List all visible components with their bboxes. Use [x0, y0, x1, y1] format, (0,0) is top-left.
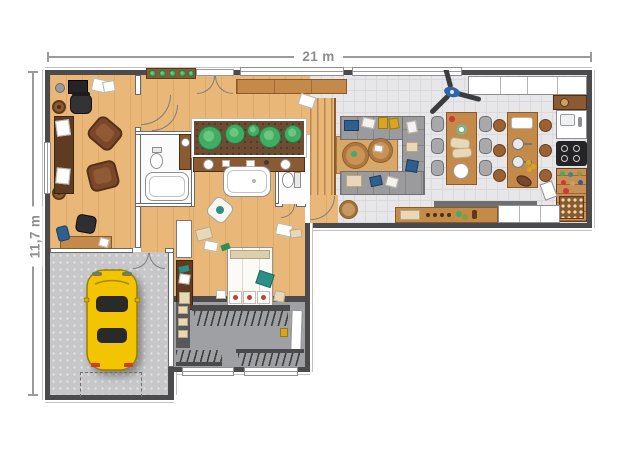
dining-chair [431, 116, 444, 132]
bath-toilet-icon [150, 153, 163, 169]
bath-sink-icon [181, 138, 190, 147]
garden-plant-icon [259, 126, 281, 148]
dining-chair [479, 116, 492, 132]
dim-left-tick-top [28, 71, 38, 73]
garden-plant-icon [225, 124, 245, 144]
stool-icon [493, 119, 506, 132]
bedroom-paper [289, 228, 302, 239]
planter-plant-icon [149, 70, 156, 77]
floor-plan: 21 m 11,7 m [0, 0, 620, 465]
cooktop-burner [573, 155, 580, 162]
vanity-sink-left [203, 159, 214, 170]
dim-top-line-left [48, 56, 296, 58]
yellow-car-icon [84, 268, 140, 372]
garage-door-dashed [80, 372, 142, 397]
cooktop-burner [573, 145, 580, 152]
entry-door-gap [196, 69, 234, 76]
window-closet-b [244, 367, 298, 376]
kitchen-shelf [553, 95, 587, 110]
wall-bath-bottom [135, 203, 195, 207]
stool-icon [539, 144, 552, 157]
cooktop [556, 141, 587, 166]
pantry-jar [568, 172, 573, 177]
dining-chair [431, 160, 444, 176]
vanity-towel [246, 160, 255, 167]
closet-item-yellow [280, 328, 288, 337]
wall-right [587, 70, 592, 228]
bed-basket [273, 290, 286, 303]
sofa-cushion [344, 120, 359, 131]
island-flowers-yellow [526, 160, 531, 165]
wall-office-a [135, 75, 141, 95]
sofa-cushion [406, 142, 418, 152]
stool-icon [493, 144, 506, 157]
dim-left-line-top [32, 72, 34, 210]
closet-hangers-br [238, 353, 302, 366]
sideboard-knobs [426, 213, 430, 217]
sink-bowl [560, 114, 575, 126]
cooktop-burner [561, 155, 568, 162]
closet-hangers [194, 311, 288, 326]
sink-faucet-icon [578, 117, 582, 127]
steps-floor [310, 98, 336, 195]
wardrobe-cabinet [176, 220, 192, 258]
vanity-sink-right [280, 159, 291, 170]
dresser-box [179, 292, 190, 304]
dim-left-line-bottom [32, 266, 34, 396]
closet-rack-bar-bl [176, 362, 222, 366]
ceiling-fan [420, 70, 484, 116]
wc-toilet-tank [294, 172, 301, 188]
cabinet-divider [540, 206, 541, 222]
plant-pot-icon [52, 100, 66, 114]
dim-top-label: 21 m [294, 49, 343, 64]
long-table-papers [55, 167, 71, 184]
bed-cushion-red [257, 291, 270, 304]
pantry-jar [561, 180, 566, 185]
vanity-accessory [264, 160, 269, 165]
cooktop-burner [561, 145, 568, 152]
bathtub-drain [252, 179, 256, 183]
office-chair-back [72, 92, 90, 96]
dim-left-tick-bottom [28, 394, 38, 396]
sofa-cushion [378, 117, 388, 129]
sofa-cushion [388, 117, 399, 129]
dining-chair [479, 160, 492, 176]
dresser-paper [178, 273, 190, 284]
closet-mirror [289, 309, 303, 351]
bed-cushion-red [243, 291, 256, 304]
planter-plant-icon [188, 70, 194, 77]
window-living-top-a [240, 67, 344, 76]
dining-chair [431, 138, 444, 154]
kitchen-cabinets-bottom [498, 205, 560, 223]
coffee-table-tray [373, 144, 383, 152]
stool-icon [493, 169, 506, 182]
wall-left [45, 70, 50, 400]
sofa-cushion [346, 175, 362, 187]
planter-plant-icon [159, 70, 166, 77]
sideboard-bottle [472, 210, 477, 219]
basket-icon [339, 200, 358, 219]
cabinet-divider [500, 77, 501, 94]
dim-top-tick-right [590, 52, 592, 62]
office-papers [102, 80, 116, 93]
garage-car [84, 268, 140, 372]
shelf-jar [560, 98, 569, 107]
vanity-towel [222, 160, 230, 167]
stool-icon [539, 119, 552, 132]
table-vase-red [449, 116, 455, 122]
window-closet-a [182, 367, 234, 376]
sofa-cushion [406, 120, 418, 134]
bath-tub-inner [149, 176, 185, 197]
pantry-jar [570, 181, 575, 186]
island-tray [511, 117, 533, 129]
master-bathtub-inner [227, 170, 267, 193]
window-office-left [44, 142, 51, 194]
garden-plant-icon [198, 126, 222, 150]
pantry-jar [563, 188, 569, 194]
closet-box [178, 318, 188, 326]
dim-left-label: 11,7 m [28, 207, 43, 267]
closet-box [178, 330, 188, 338]
dining-chair [479, 138, 492, 154]
island-pan [512, 156, 524, 168]
long-table-papers [55, 119, 71, 137]
desk-chair-icon [75, 213, 98, 234]
bed-bench-item [216, 290, 226, 299]
pantry-jar [560, 171, 565, 176]
bed-pillows [230, 250, 270, 259]
sideboard-cutting-board [400, 210, 420, 220]
garden-plant-icon [284, 125, 302, 143]
cabinet-divider [527, 77, 528, 94]
entry-sideboard [236, 79, 347, 94]
cabinet-divider [519, 206, 520, 222]
bed-cushion-red [229, 291, 242, 304]
sideboard-fruit [456, 211, 462, 217]
closet-box [178, 306, 188, 314]
cabinet-divider [557, 77, 558, 94]
table-plate-green [456, 124, 467, 135]
wall-garage-right [168, 252, 174, 367]
wall-bottom-living [310, 223, 592, 228]
ceiling-fan-icon [420, 70, 484, 116]
wc-toilet-icon [282, 172, 294, 188]
bedroom-chair-cushion [216, 206, 224, 214]
dim-top-tick-left [47, 52, 49, 62]
planter-plant-icon [179, 70, 186, 77]
bath-toilet-tank [152, 147, 162, 153]
wine-rack [559, 196, 584, 219]
office-gadget [55, 83, 65, 93]
planter-plant-icon [169, 70, 176, 77]
pantry-jar [577, 171, 582, 176]
pantry-jar [578, 180, 583, 185]
office-chair-icon [70, 94, 92, 114]
island-pan-handle [524, 143, 532, 145]
sofa-cushion [405, 159, 419, 173]
dim-top-line-right [341, 56, 592, 58]
island-pan [512, 138, 524, 150]
table-board [452, 147, 473, 159]
wall-step-garage [168, 372, 174, 395]
table-plate-white [453, 163, 469, 179]
wall-right-wing [305, 223, 310, 372]
coffee-table-item [351, 151, 357, 157]
